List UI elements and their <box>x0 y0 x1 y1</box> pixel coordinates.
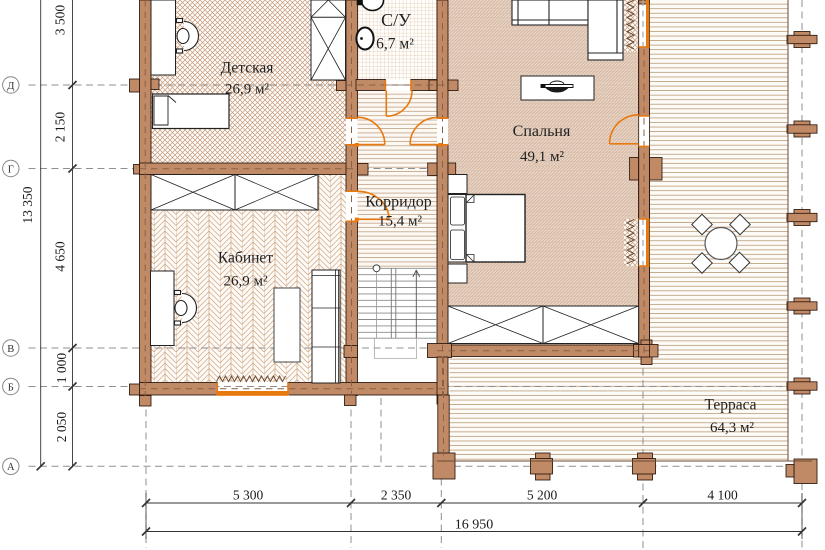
svg-text:Корридор: Корридор <box>365 194 432 211</box>
svg-text:2 350: 2 350 <box>381 488 412 503</box>
svg-text:26,9 м²: 26,9 м² <box>224 274 268 290</box>
svg-text:4 100: 4 100 <box>707 488 738 503</box>
svg-text:2 150: 2 150 <box>53 112 68 143</box>
svg-text:Кабинет: Кабинет <box>218 250 273 267</box>
svg-text:Спальня: Спальня <box>513 123 571 140</box>
svg-text:64,3 м²: 64,3 м² <box>710 420 754 436</box>
svg-text:Б: Б <box>8 382 14 393</box>
svg-text:Детская: Детская <box>221 60 274 77</box>
svg-text:49,1 м²: 49,1 м² <box>520 149 564 165</box>
svg-text:5 300: 5 300 <box>233 488 264 503</box>
svg-text:2 050: 2 050 <box>54 412 69 443</box>
svg-text:3 500: 3 500 <box>53 5 68 36</box>
svg-text:5 200: 5 200 <box>527 488 558 503</box>
svg-text:1 000: 1 000 <box>54 353 69 384</box>
svg-text:13 350: 13 350 <box>20 186 35 223</box>
svg-text:А: А <box>7 462 15 473</box>
svg-text:16 950: 16 950 <box>455 518 494 533</box>
svg-text:4 650: 4 650 <box>53 241 68 272</box>
svg-text:Терраса: Терраса <box>704 397 756 414</box>
svg-text:Г: Г <box>8 164 14 175</box>
svg-text:15,4 м²: 15,4 м² <box>378 214 422 230</box>
svg-text:26,9 м²: 26,9 м² <box>225 82 269 98</box>
svg-text:В: В <box>7 344 14 355</box>
svg-text:С/У: С/У <box>381 10 411 30</box>
svg-text:6,7 м²: 6,7 м² <box>376 36 414 53</box>
svg-text:Д: Д <box>7 81 14 92</box>
